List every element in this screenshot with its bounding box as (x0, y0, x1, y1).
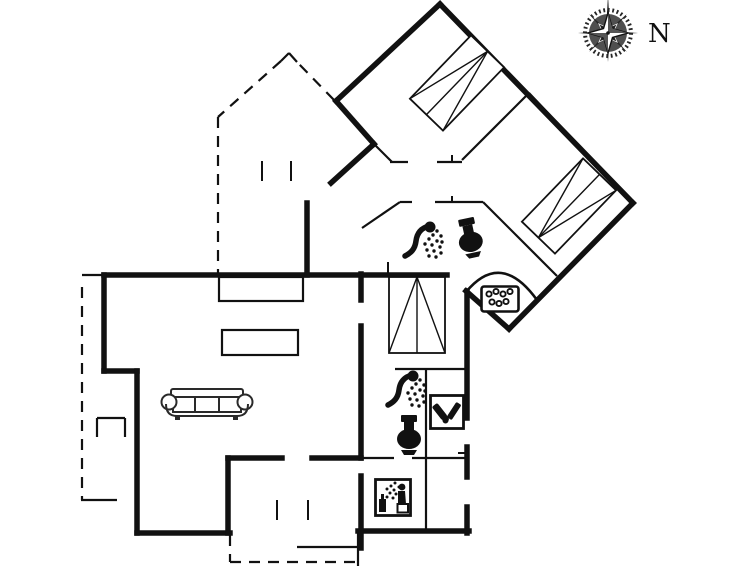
wall (336, 101, 374, 144)
compass-north-label: N (648, 19, 671, 49)
terrace-outlines (82, 61, 358, 562)
whirlpool-icon (482, 287, 519, 312)
sofa (162, 389, 253, 420)
toilet-icon (454, 216, 486, 260)
toilet-icon (397, 415, 421, 455)
furniture (219, 35, 616, 355)
partition-wall (281, 53, 289, 61)
bed (410, 35, 504, 130)
compass-rose (578, 0, 638, 62)
terrace-edge (218, 61, 281, 117)
floor-plan-canvas: N (0, 0, 755, 566)
wardrobe (222, 330, 298, 355)
bed (389, 277, 445, 353)
floor-plan-page: N (0, 0, 755, 566)
partition-walls (81, 53, 631, 566)
washing-supplies-icon (431, 396, 464, 429)
shower-icon (388, 371, 427, 408)
partition-wall (374, 144, 392, 162)
partition-wall (362, 202, 400, 228)
terrace-edge (297, 62, 334, 100)
wardrobe (219, 277, 303, 301)
partition-wall (289, 53, 297, 62)
wall (331, 144, 374, 183)
partition-wall (462, 93, 529, 160)
compass-rose-graphic (578, 0, 638, 62)
exterior-walls (104, 4, 633, 548)
sauna-icon (376, 480, 411, 516)
shower-icon (405, 222, 444, 259)
